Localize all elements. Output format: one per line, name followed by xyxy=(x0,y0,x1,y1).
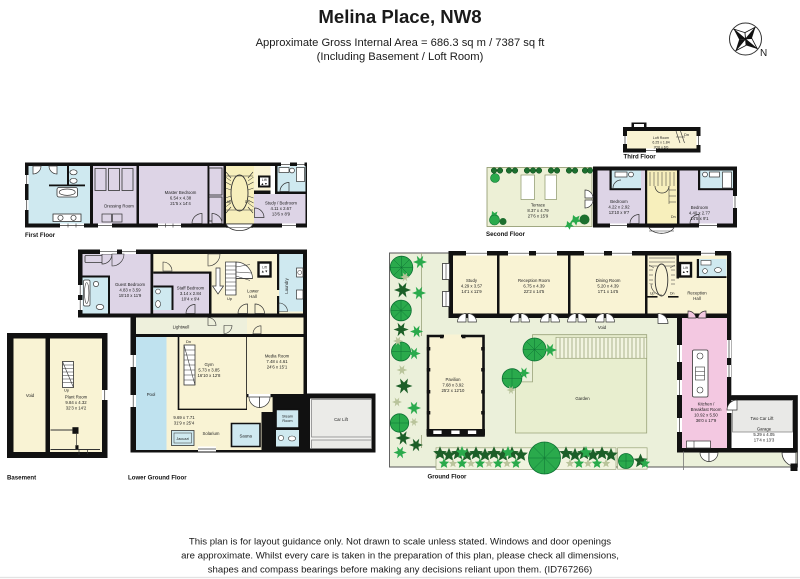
svg-text:Dn: Dn xyxy=(670,292,675,296)
svg-text:Terrace: Terrace xyxy=(531,203,546,208)
svg-text:Guest Bedroom: Guest Bedroom xyxy=(115,282,146,287)
svg-text:Kitchen /: Kitchen / xyxy=(698,402,716,407)
svg-text:Up: Up xyxy=(227,296,233,301)
svg-text:10.92 x 5.50: 10.92 x 5.50 xyxy=(694,413,718,418)
svg-text:10'4 x 9'4: 10'4 x 9'4 xyxy=(181,297,200,302)
svg-text:Room: Room xyxy=(282,419,292,423)
svg-text:▲▼: ▲▼ xyxy=(261,182,268,186)
svg-text:Up: Up xyxy=(650,292,655,296)
svg-text:4.11 x 2.67: 4.11 x 2.67 xyxy=(271,206,293,211)
svg-text:16'10 x 12'8: 16'10 x 12'8 xyxy=(198,373,222,378)
svg-text:Car Lift: Car Lift xyxy=(334,417,349,422)
svg-text:▲▼: ▲▼ xyxy=(682,270,689,274)
svg-text:Bedroom: Bedroom xyxy=(610,199,628,204)
svg-text:Hall: Hall xyxy=(693,296,700,301)
svg-text:17'4 x 13'3: 17'4 x 13'3 xyxy=(754,438,775,443)
svg-text:7.48 x 4.61: 7.48 x 4.61 xyxy=(266,359,288,364)
svg-text:Gym: Gym xyxy=(204,362,213,367)
svg-text:Lower: Lower xyxy=(247,289,259,294)
svg-text:Media Room: Media Room xyxy=(265,354,290,359)
svg-text:Second Floor: Second Floor xyxy=(486,231,526,238)
svg-text:Ground Floor: Ground Floor xyxy=(428,474,468,481)
svg-text:15'10 x 11'9: 15'10 x 11'9 xyxy=(119,293,142,298)
svg-text:Void: Void xyxy=(598,325,607,330)
svg-text:Dn: Dn xyxy=(671,215,676,219)
svg-text:20'6 x 6'0: 20'6 x 6'0 xyxy=(654,145,669,149)
svg-text:Pool: Pool xyxy=(147,392,156,397)
svg-text:Up: Up xyxy=(64,388,70,393)
svg-text:Lightwell: Lightwell xyxy=(173,325,190,330)
svg-text:Laundry: Laundry xyxy=(284,277,289,293)
svg-text:First Floor: First Floor xyxy=(25,232,56,239)
svg-text:13'10 x 9'7: 13'10 x 9'7 xyxy=(609,210,630,215)
svg-text:6.25 x 1.84: 6.25 x 1.84 xyxy=(652,141,669,145)
svg-text:▲▼: ▲▼ xyxy=(261,270,268,274)
svg-text:Third Floor: Third Floor xyxy=(624,154,657,161)
svg-text:8.37 x 4.79: 8.37 x 4.79 xyxy=(527,208,549,213)
svg-text:This plan is for layout guidan: This plan is for layout guidance only. N… xyxy=(189,537,611,548)
svg-text:Basement: Basement xyxy=(7,475,36,482)
svg-text:4.29 x 3.57: 4.29 x 3.57 xyxy=(461,284,483,289)
svg-text:Jacuzzi: Jacuzzi xyxy=(176,437,189,441)
svg-text:Up: Up xyxy=(227,200,231,204)
svg-text:Dressing Room: Dressing Room xyxy=(104,204,134,209)
svg-text:Garage: Garage xyxy=(757,427,772,432)
svg-text:(Including Basement / Loft Roo: (Including Basement / Loft Room) xyxy=(317,51,484,63)
svg-text:4.83 x 3.59: 4.83 x 3.59 xyxy=(119,288,141,293)
svg-text:Garden: Garden xyxy=(575,396,590,401)
svg-text:Void: Void xyxy=(26,393,35,398)
svg-text:32'3 x 14'2: 32'3 x 14'2 xyxy=(66,406,87,411)
svg-text:N: N xyxy=(760,48,767,59)
svg-text:Bedroom: Bedroom xyxy=(691,205,709,210)
svg-text:21'5 x 14'4: 21'5 x 14'4 xyxy=(170,201,191,206)
svg-text:Hall: Hall xyxy=(249,294,256,299)
svg-text:Pavilion: Pavilion xyxy=(445,377,461,382)
svg-text:25'2 x 12'10: 25'2 x 12'10 xyxy=(442,388,466,393)
svg-text:Approximate Gross Internal Are: Approximate Gross Internal Area = 686.3 … xyxy=(256,37,546,49)
svg-text:Staff Bedroom: Staff Bedroom xyxy=(177,286,205,291)
svg-text:Master Bedroom: Master Bedroom xyxy=(165,190,197,195)
svg-text:Plant Room: Plant Room xyxy=(65,395,88,400)
svg-text:17'1 x 14'5: 17'1 x 14'5 xyxy=(598,289,619,294)
svg-text:Dn: Dn xyxy=(186,339,191,344)
svg-text:Dining Room: Dining Room xyxy=(596,278,621,283)
svg-text:22'2 x 14'5: 22'2 x 14'5 xyxy=(524,289,545,294)
svg-text:9.69 x 7.71: 9.69 x 7.71 xyxy=(173,415,195,420)
svg-text:4.40 x 2.77: 4.40 x 2.77 xyxy=(689,211,711,216)
svg-text:6.75 x 4.39: 6.75 x 4.39 xyxy=(523,284,545,289)
svg-text:Lower Ground Floor: Lower Ground Floor xyxy=(128,475,187,482)
svg-text:5.29 x 4.05: 5.29 x 4.05 xyxy=(753,432,775,437)
svg-text:Loft Room: Loft Room xyxy=(653,136,669,140)
svg-text:7.68 x 3.92: 7.68 x 3.92 xyxy=(442,383,464,388)
svg-text:31'9 x 25'4: 31'9 x 25'4 xyxy=(174,421,195,426)
svg-text:Two Car Lift: Two Car Lift xyxy=(751,416,775,421)
svg-text:Steam: Steam xyxy=(282,415,293,419)
svg-text:Breakfast Room: Breakfast Room xyxy=(691,407,722,412)
svg-text:Melina Place, NW8: Melina Place, NW8 xyxy=(318,6,481,27)
svg-text:5.20 x 4.39: 5.20 x 4.39 xyxy=(597,284,619,289)
svg-text:are approximate. Whilst every: are approximate. Whilst every care is ta… xyxy=(181,551,619,562)
svg-text:Reception Room: Reception Room xyxy=(518,278,550,283)
svg-text:5.73 x 3.85: 5.73 x 3.85 xyxy=(198,368,220,373)
svg-text:9.84 x 4.32: 9.84 x 4.32 xyxy=(65,400,87,405)
svg-text:27'6 x 15'9: 27'6 x 15'9 xyxy=(528,214,549,219)
svg-text:13'6 x 8'9: 13'6 x 8'9 xyxy=(272,212,291,217)
svg-text:Study / Bedroom: Study / Bedroom xyxy=(265,201,297,206)
svg-text:Reception: Reception xyxy=(687,291,707,296)
svg-text:shapes and compass bearings be: shapes and compass bearings before makin… xyxy=(208,565,593,576)
svg-text:Dn: Dn xyxy=(245,200,249,204)
svg-text:4.22 x 2.92: 4.22 x 2.92 xyxy=(608,205,630,210)
svg-text:14'1 x 11'9: 14'1 x 11'9 xyxy=(461,289,482,294)
svg-text:Dn: Dn xyxy=(684,132,689,137)
svg-text:Sauna: Sauna xyxy=(239,434,252,439)
svg-text:36'0 x 17'9: 36'0 x 17'9 xyxy=(696,418,717,423)
svg-text:Study: Study xyxy=(466,278,478,283)
svg-text:24'6 x 15'1: 24'6 x 15'1 xyxy=(267,365,288,370)
svg-text:6.54 x 4.38: 6.54 x 4.38 xyxy=(170,196,192,201)
svg-text:3.14 x 2.84: 3.14 x 2.84 xyxy=(180,291,202,296)
svg-text:14'5 x 9'1: 14'5 x 9'1 xyxy=(690,216,709,221)
svg-text:Solarium: Solarium xyxy=(203,431,220,436)
